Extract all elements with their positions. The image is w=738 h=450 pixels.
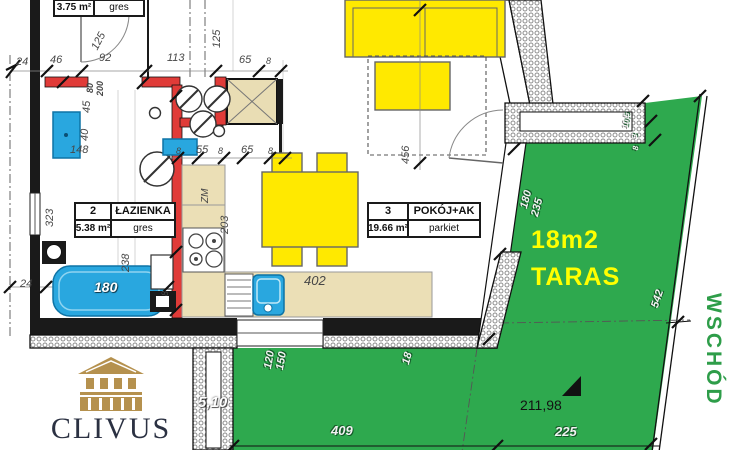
dimension-label: 5,10 [198, 395, 227, 410]
dimension-label: 10,5 [622, 112, 631, 128]
dimension-label: 225 [555, 425, 577, 438]
terrace-label: 18m2 TARAS [531, 222, 620, 296]
dimension-label: 238 [121, 254, 132, 272]
dimension-label: 92 [99, 53, 111, 64]
floor-plan: 3.75 m² gres 2 ŁAZIENKA 5.38 m² gres 3 P… [0, 0, 738, 450]
room-area: 19.66 m² [368, 220, 408, 237]
dimension-label: 3 [631, 134, 639, 139]
dimension-label: 409 [331, 424, 353, 437]
dimension-label: 8 [632, 146, 640, 151]
dimension-label: 65 [241, 145, 253, 156]
room-floor: gres [111, 220, 175, 237]
annotation-layer: 3.75 m² gres 2 ŁAZIENKA 5.38 m² gres 3 P… [0, 0, 738, 450]
room-table-living: 3 POKÓJ+AK 19.66 m² parkiet [367, 202, 481, 238]
dimension-label: 46 [50, 55, 62, 66]
terrace-size: 18m2 [531, 222, 620, 259]
room-floor: gres [94, 0, 144, 16]
dimension-label: 203 [220, 216, 231, 234]
dimension-label: 65 [239, 55, 251, 66]
room-table-hall: 3.75 m² gres [53, 0, 145, 17]
dimension-label: 18 [401, 351, 415, 366]
dimension-label: 24 [20, 279, 32, 290]
dimension-label: 148 [70, 145, 88, 156]
room-area: 5.38 m² [75, 220, 111, 237]
dimension-label: 125 [212, 30, 223, 48]
dimension-label: 45 [82, 101, 93, 113]
compass-label: WSCHÓD [701, 293, 725, 450]
dimension-label: 8 [176, 147, 181, 156]
room-name: ŁAZIENKA [111, 203, 175, 220]
terrace-name: TARAS [531, 259, 620, 296]
dimension-label: 8 [266, 57, 271, 66]
dimension-label: 125 [90, 31, 108, 52]
dimension-label: 402 [304, 274, 326, 287]
dimension-label: 113 [167, 53, 185, 64]
room-table-bathroom: 2 ŁAZIENKA 5.38 m² gres [74, 202, 176, 238]
dimension-label: 8 [268, 147, 273, 156]
room-number: 3 [368, 203, 408, 220]
dimension-label: 8 [161, 291, 170, 296]
dimension-label: 8 [218, 147, 223, 156]
dimension-label: 200 [96, 81, 105, 96]
dimension-label: 55 [196, 145, 208, 156]
elevation-value: 211,98 [520, 397, 562, 413]
dimension-label: 150 [275, 351, 289, 371]
room-area: 3.75 m² [54, 0, 94, 16]
dimension-label: 40 [80, 129, 91, 141]
room-floor: parkiet [408, 220, 480, 237]
dimension-label: 542 [650, 289, 666, 310]
dimension-label: 180 [94, 280, 117, 294]
dimension-label: 235 [530, 197, 545, 218]
room-name: POKÓJ+AK [408, 203, 480, 220]
room-number: 2 [75, 203, 111, 220]
dimension-label: 24 [16, 57, 28, 68]
dimension-label: 456 [401, 146, 412, 164]
dimension-label: ZM [201, 189, 211, 203]
brand-wordmark: CLIVUS [36, 412, 186, 446]
dimension-label: 80 [86, 83, 95, 93]
dimension-label: 323 [45, 209, 56, 227]
